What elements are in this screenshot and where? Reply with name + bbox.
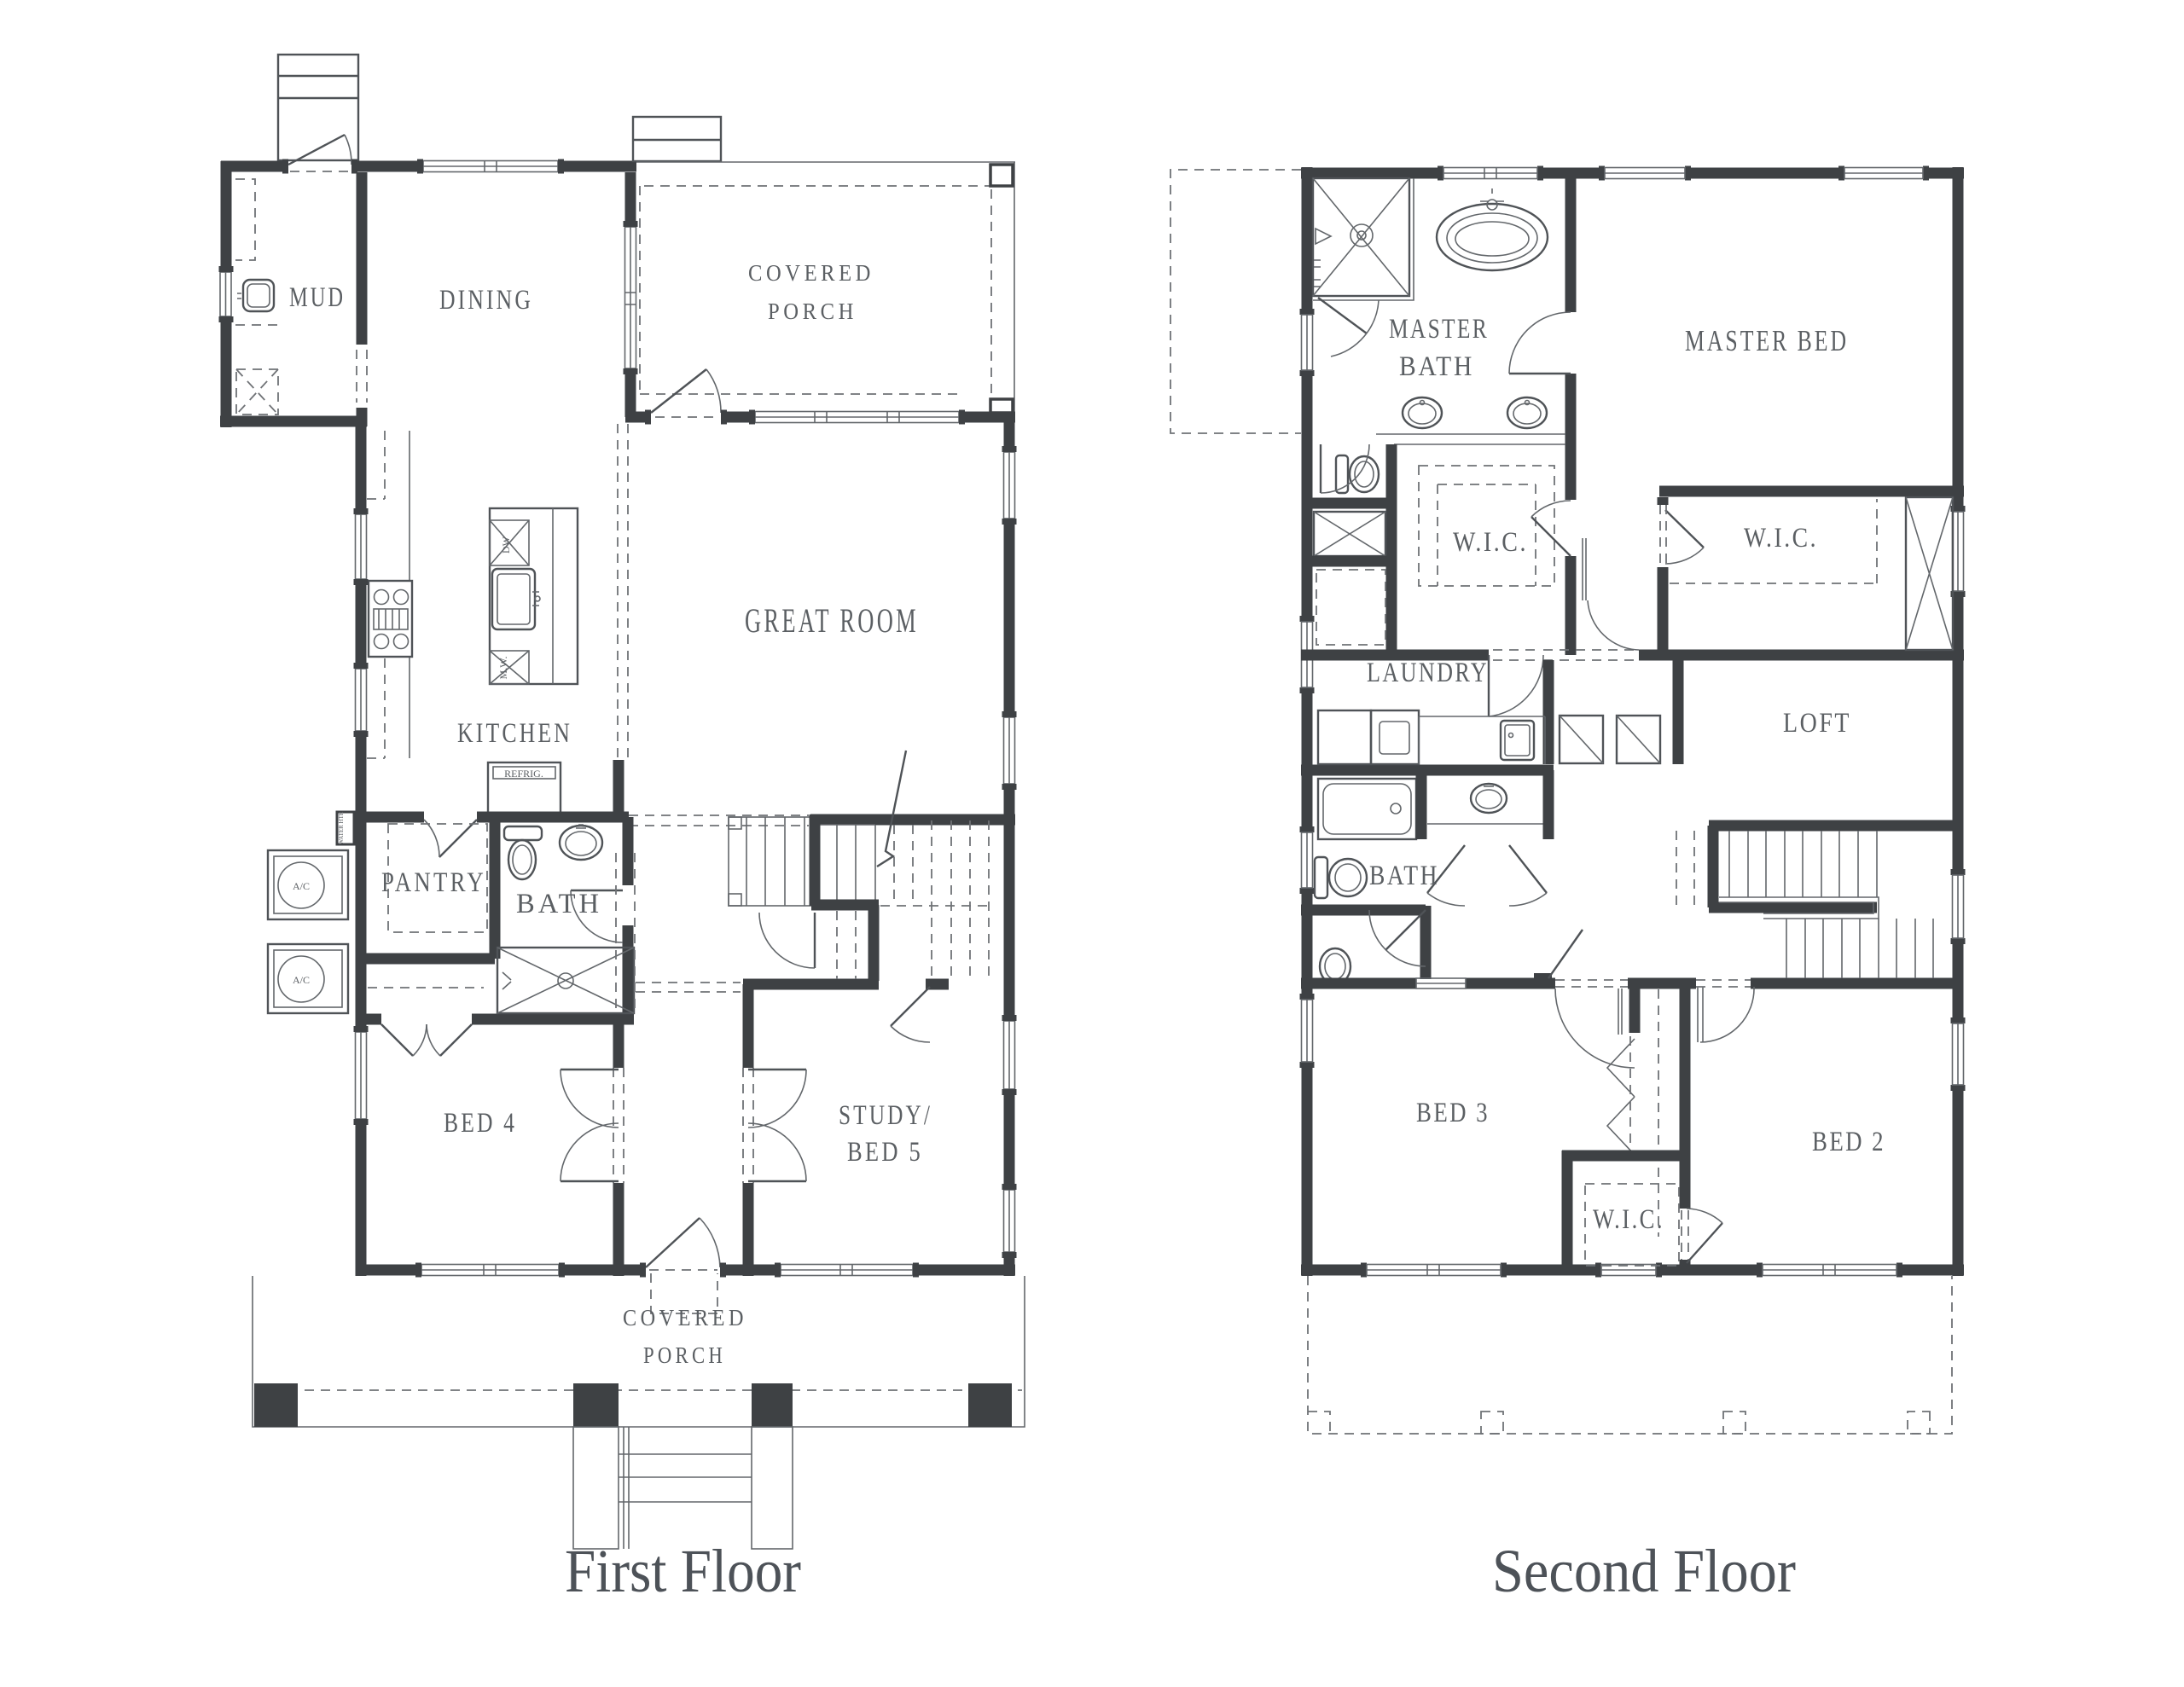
svg-text:STUDY/: STUDY/ [839,1100,932,1131]
svg-text:REFRIG.: REFRIG. [504,768,543,780]
svg-text:GREAT ROOM: GREAT ROOM [745,601,919,640]
svg-text:BATH: BATH [1399,351,1474,382]
svg-text:LAUNDRY: LAUNDRY [1367,658,1489,688]
svg-text:PORCH: PORCH [768,299,857,324]
svg-text:BED 2: BED 2 [1812,1127,1885,1157]
svg-text:BATH: BATH [516,889,602,919]
svg-text:PANTRY: PANTRY [381,867,486,898]
svg-text:MASTER BED: MASTER BED [1685,324,1849,357]
svg-text:LOFT: LOFT [1783,708,1851,739]
svg-text:WATER HTR: WATER HTR [338,811,345,844]
svg-text:W.I.C.: W.I.C. [1453,527,1528,558]
svg-text:Second Floor: Second Floor [1492,1537,1796,1605]
svg-text:BED 5: BED 5 [847,1137,923,1168]
svg-text:BED 3: BED 3 [1416,1098,1490,1128]
svg-text:PORCH: PORCH [643,1342,726,1368]
svg-text:W.I.C.: W.I.C. [1593,1204,1664,1235]
svg-text:First Floor: First Floor [565,1537,801,1605]
svg-text:DW: DW [500,536,512,554]
svg-text:KITCHEN: KITCHEN [457,718,572,749]
svg-text:BATH: BATH [1369,861,1439,891]
svg-text:A/C: A/C [293,880,310,892]
svg-text:COVERED: COVERED [623,1305,747,1330]
svg-text:W.I.C.: W.I.C. [1744,523,1818,554]
svg-text:DINING: DINING [439,285,533,316]
svg-text:MUD: MUD [289,282,346,313]
svg-text:BED 4: BED 4 [444,1108,517,1139]
svg-text:COVERED: COVERED [748,260,874,286]
svg-text:A/C: A/C [293,974,310,986]
svg-text:M.W.: M.W. [497,657,509,680]
svg-text:MASTER: MASTER [1389,314,1489,345]
